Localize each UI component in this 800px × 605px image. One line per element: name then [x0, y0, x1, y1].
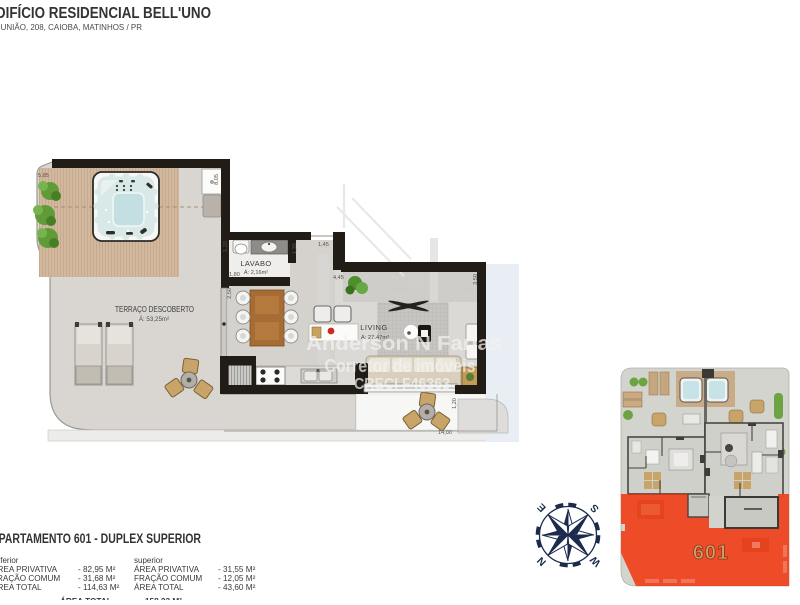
svg-text:- 31,68 M²: - 31,68 M² [78, 574, 116, 583]
svg-text:inferior: inferior [0, 556, 19, 565]
svg-text:2,50: 2,50 [227, 288, 233, 299]
svg-text:- 43,60 M²: - 43,60 M² [218, 583, 256, 592]
svg-text:FRAÇÃO COMUM: FRAÇÃO COMUM [0, 573, 60, 583]
svg-text:superior: superior [134, 556, 163, 565]
svg-text:5,85: 5,85 [38, 173, 49, 179]
svg-text:8,05: 8,05 [214, 174, 220, 185]
svg-text:FRAÇÃO COMUM: FRAÇÃO COMUM [134, 573, 202, 583]
svg-text:Corretor de imóveis: Corretor de imóveis [325, 356, 476, 376]
svg-text:Anderson N Farias: Anderson N Farias [306, 333, 502, 355]
svg-text:TERRAÇO DESCOBERTO: TERRAÇO DESCOBERTO [115, 305, 194, 314]
svg-text:EDIFÍCIO RESIDENCIAL BELL'UNO: EDIFÍCIO RESIDENCIAL BELL'UNO [0, 3, 211, 22]
svg-text:- 114,63 M²: - 114,63 M² [78, 583, 120, 592]
svg-text:ÁREA PRIVATIVA: ÁREA PRIVATIVA [0, 564, 58, 574]
svg-text:Á: 53,25m²: Á: 53,25m² [139, 316, 169, 323]
svg-text:LAVABO: LAVABO [240, 259, 271, 268]
svg-text:CRECI F46363: CRECI F46363 [354, 376, 450, 393]
svg-text:- 12,05 M²: - 12,05 M² [218, 574, 256, 583]
svg-text:1,20: 1,20 [452, 398, 458, 409]
svg-text:601: 601 [693, 542, 729, 564]
svg-text:APARTAMENTO 601 - DUPLEX SUPER: APARTAMENTO 601 - DUPLEX SUPERIOR [0, 531, 201, 546]
svg-text:- 31,55 M²: - 31,55 M² [218, 565, 256, 574]
svg-text:Á: 2,16m²: Á: 2,16m² [244, 269, 268, 276]
svg-text:1,20: 1,20 [223, 241, 229, 252]
svg-text:1,35: 1,35 [292, 243, 298, 254]
svg-text:LIVING: LIVING [360, 323, 388, 332]
svg-text:1,80: 1,80 [229, 272, 240, 278]
svg-text:- 82,95 M²: - 82,95 M² [78, 565, 116, 574]
svg-text:RUA UNIÃO, 208, CAIOBA, MATINH: RUA UNIÃO, 208, CAIOBA, MATINHOS / PR [0, 22, 142, 32]
svg-text:ÁREA TOTAL: ÁREA TOTAL [134, 582, 184, 592]
svg-text:ÁREA TOTAL: ÁREA TOTAL [60, 596, 112, 600]
svg-text:ÁREA PRIVATIVA: ÁREA PRIVATIVA [134, 564, 200, 574]
svg-text:4,45: 4,45 [333, 275, 344, 281]
svg-text:1,45: 1,45 [318, 242, 329, 248]
svg-text:ÁREA TOTAL: ÁREA TOTAL [0, 582, 42, 592]
svg-text:3,50: 3,50 [473, 274, 479, 285]
